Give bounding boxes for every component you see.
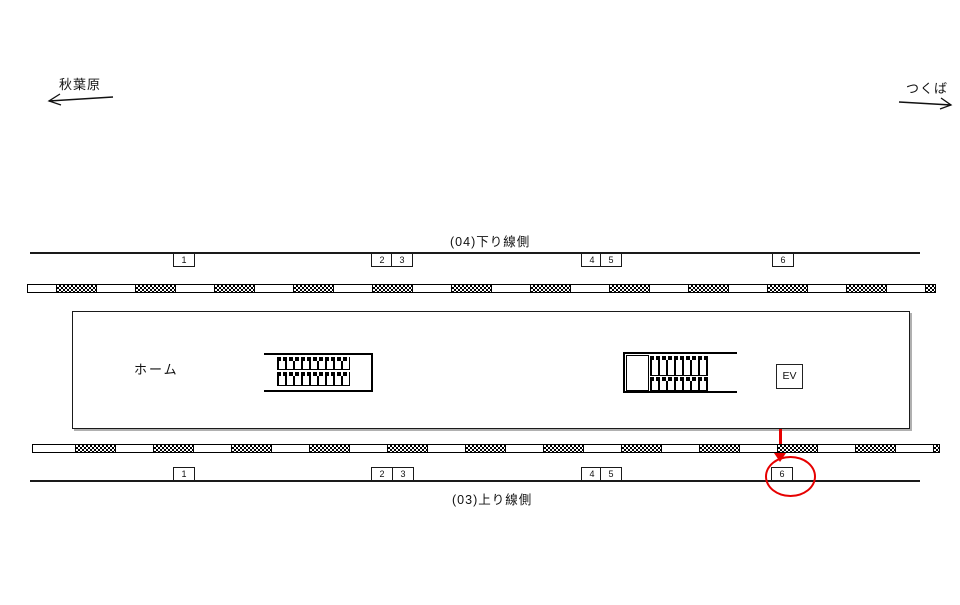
tactile-hatch-segment: [621, 445, 662, 452]
tactile-hatch-segment: [56, 285, 97, 292]
tactile-hatch-segment: [75, 445, 116, 452]
tactile-hatch-segment: [451, 285, 492, 292]
tactile-strip-top: [27, 284, 936, 293]
arrow-right-icon: [898, 96, 956, 110]
tactile-strip-bottom: [32, 444, 940, 453]
tactile-hatch-segment: [135, 285, 176, 292]
door-marker-bottom-1: 1: [173, 467, 195, 481]
door-marker-top-5: 5: [600, 253, 622, 267]
door-marker-top-6: 6: [772, 253, 794, 267]
tactile-hatch-segment: [153, 445, 194, 452]
tactile-hatch-segment: [699, 445, 740, 452]
tactile-hatch-segment: [925, 285, 936, 292]
tactile-hatch-segment: [767, 285, 808, 292]
station-platform-diagram: 秋葉原 つくば (04)下り線側 1 2 3 4 5 6 ホーム: [0, 0, 960, 605]
stair-flight-lower: [650, 377, 708, 391]
direction-indicator-akihabara: 秋葉原: [45, 78, 115, 106]
stair-flight-lower: [277, 372, 350, 386]
door-marker-top-1: 1: [173, 253, 195, 267]
tactile-hatch-segment: [688, 285, 729, 292]
door-marker-top-2: 2: [371, 253, 393, 267]
door-marker-bottom-5: 5: [600, 467, 622, 481]
platform-label: ホーム: [134, 359, 179, 378]
tactile-hatch-segment: [777, 445, 818, 452]
tactile-hatch-segment: [231, 445, 272, 452]
tactile-hatch-segment: [846, 285, 887, 292]
direction-indicator-tsukuba: つくば: [898, 82, 956, 110]
tactile-hatch-segment: [855, 445, 896, 452]
tactile-hatch-segment: [933, 445, 940, 452]
track-label-up-line: (03)上り線側: [452, 489, 532, 508]
tactile-hatch-segment: [293, 285, 334, 292]
tactile-hatch-segment: [465, 445, 506, 452]
tactile-hatch-segment: [387, 445, 428, 452]
tactile-hatch-segment: [609, 285, 650, 292]
elevator-box: EV: [776, 364, 803, 389]
stairs-right: [623, 352, 737, 393]
arrow-left-icon: [45, 92, 115, 106]
direction-label-right: つくば: [898, 82, 956, 96]
tactile-hatch-segment: [214, 285, 255, 292]
highlight-circle: [765, 456, 816, 497]
direction-label-left: 秋葉原: [45, 78, 115, 92]
door-marker-top-3: 3: [391, 253, 413, 267]
stair-flight-upper: [650, 356, 708, 376]
stair-flight-upper: [277, 357, 350, 370]
door-marker-bottom-3: 3: [392, 467, 414, 481]
door-marker-bottom-2: 2: [371, 467, 393, 481]
tactile-hatch-segment: [372, 285, 413, 292]
tactile-hatch-segment: [309, 445, 350, 452]
tactile-hatch-segment: [530, 285, 571, 292]
track-label-down-line: (04)下り線側: [450, 231, 530, 250]
tactile-hatch-segment: [543, 445, 584, 452]
stairs-left: [264, 353, 373, 392]
platform-body: ホーム EV: [72, 311, 910, 429]
stair-landing: [626, 355, 649, 391]
